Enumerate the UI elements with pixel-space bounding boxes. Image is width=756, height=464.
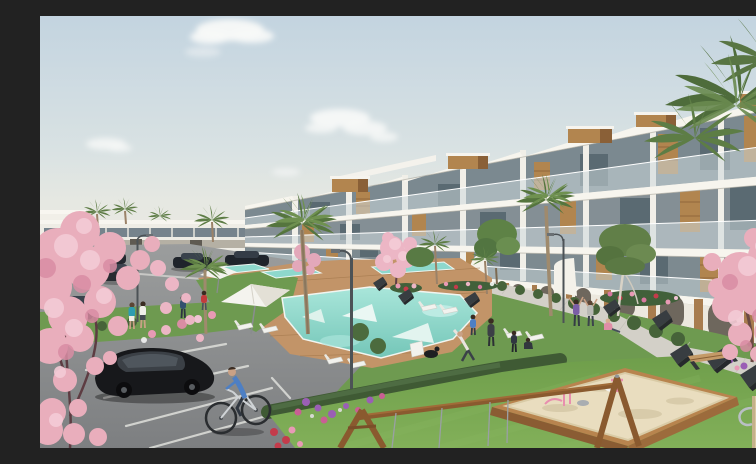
- flower-bed-path-row: [438, 281, 498, 291]
- rendering-canvas: [40, 16, 756, 448]
- arched-wall: [554, 258, 577, 296]
- architectural-rendering: Architectural rendering of a new-build w…: [40, 16, 756, 448]
